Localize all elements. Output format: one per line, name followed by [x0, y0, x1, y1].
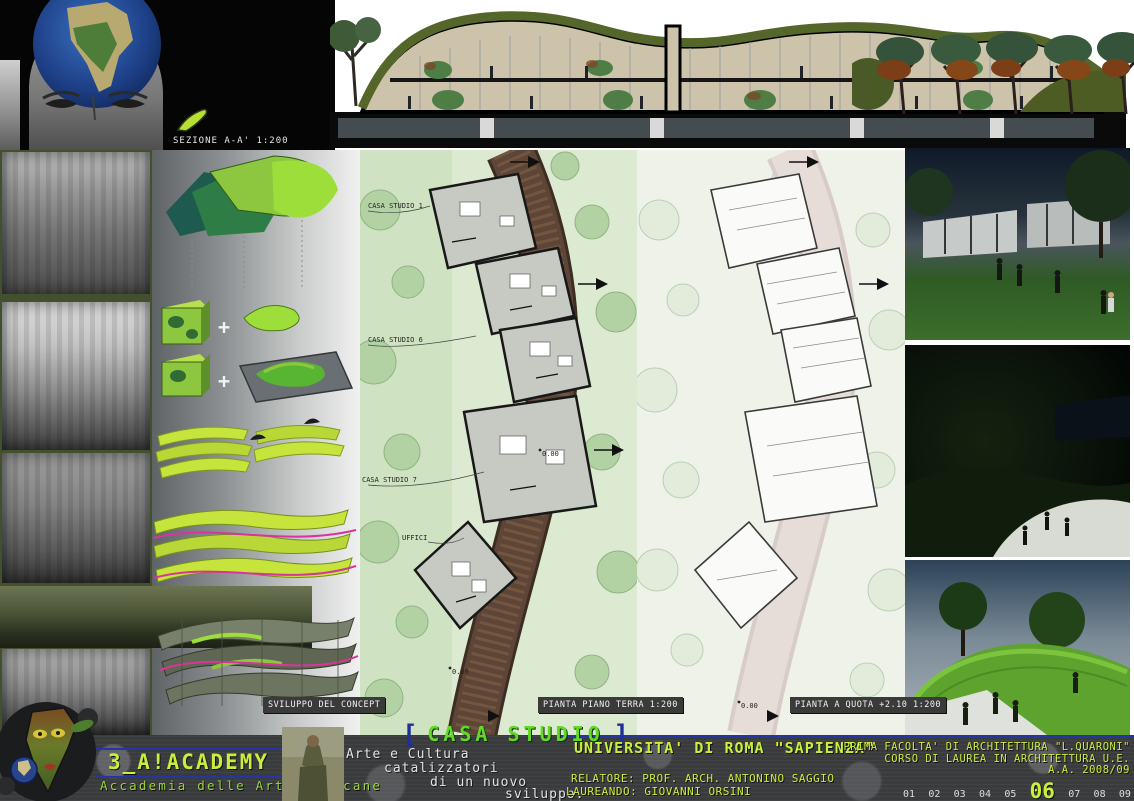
african-village-photo-3 — [2, 453, 150, 583]
svg-text:+: + — [218, 315, 230, 339]
african-village-photo-1 — [2, 152, 150, 294]
soldier-photo — [282, 727, 344, 801]
section-scale-label: SEZIONE A-A' 1:200 — [173, 136, 289, 146]
title-bracket-left: [ — [402, 720, 418, 750]
svg-text:0.00: 0.00 — [452, 668, 469, 676]
advisor-credit: RELATORE: PROF. ARCH. ANTONINO SAGGIO — [571, 772, 835, 785]
render-night-path — [905, 345, 1130, 557]
academy-name: 3_A!ACADEMY — [108, 750, 269, 774]
concept-diagram-stack: + + — [152, 150, 360, 735]
page-number-09: 09 — [1119, 789, 1131, 800]
page-number-04: 04 — [979, 789, 991, 800]
upper-plan-caption: PIANTA A QUOTA +2.10 1:200 — [790, 697, 946, 713]
tagline-line-1: Arte e Cultura — [346, 747, 470, 762]
concept-cube-equation-1: + — [162, 300, 299, 344]
tagline-line-2: catalizzatori — [384, 761, 499, 776]
page-number-07: 07 — [1068, 789, 1080, 800]
africa-mask-logo — [0, 700, 100, 801]
svg-text:CASA STUDIO 1: CASA STUDIO 1 — [368, 202, 423, 210]
academy-brush-icon — [176, 108, 212, 134]
svg-text:0.00: 0.00 — [741, 702, 758, 710]
page-number-06-current: 06 — [1030, 782, 1055, 800]
presentation-board: SEZIONE A-A' 1:200 — [0, 0, 1134, 801]
page-number-08: 08 — [1094, 789, 1106, 800]
concept-terrace-study-1 — [156, 418, 344, 478]
faculty-name: PRIMA FACOLTA' DI ARCHITETTURA "L.QUARON… — [838, 742, 1130, 754]
ground-floor-plan: CASA STUDIO 1 CASA STUDIO 6 CASA STUDIO … — [360, 150, 637, 735]
concept-wireframe-massing — [158, 614, 358, 706]
concept-cube-equation-2: + — [162, 352, 352, 402]
page-number-01: 01 — [903, 789, 915, 800]
render-courtyard-day — [905, 148, 1130, 340]
student-credit: LAUREANDO: GIOVANNI ORSINI — [566, 785, 751, 798]
university-name: UNIVERSITA' DI ROMA "SAPIENZA" — [574, 739, 875, 757]
svg-text:CASA STUDIO 7: CASA STUDIO 7 — [362, 476, 417, 484]
concept-roof-form — [166, 156, 338, 290]
page-number-03: 03 — [954, 789, 966, 800]
svg-text:CASA STUDIO 6: CASA STUDIO 6 — [368, 336, 423, 344]
concept-terrace-study-2 — [154, 510, 356, 582]
african-village-photo-2 — [2, 302, 150, 450]
pine-tree-row — [852, 26, 1134, 114]
panel-page-index: 01 02 03 04 05 06 07 08 09 — [903, 772, 1131, 800]
svg-text:0.00: 0.00 — [542, 450, 559, 458]
svg-text:UFFICI: UFFICI — [402, 534, 427, 542]
pine-trees — [876, 32, 1134, 114]
footer-top-rule — [558, 736, 1134, 738]
upper-level-plan: 0.00 — [637, 150, 905, 735]
africa-globe-head-image — [15, 0, 175, 150]
page-number-02: 02 — [928, 789, 940, 800]
concept-caption: SVILUPPO DEL CONCEPT — [263, 697, 385, 713]
svg-text:+: + — [218, 369, 230, 393]
ground-plan-caption: PIANTA PIANO TERRA 1:200 — [538, 697, 683, 713]
page-number-05: 05 — [1004, 789, 1016, 800]
